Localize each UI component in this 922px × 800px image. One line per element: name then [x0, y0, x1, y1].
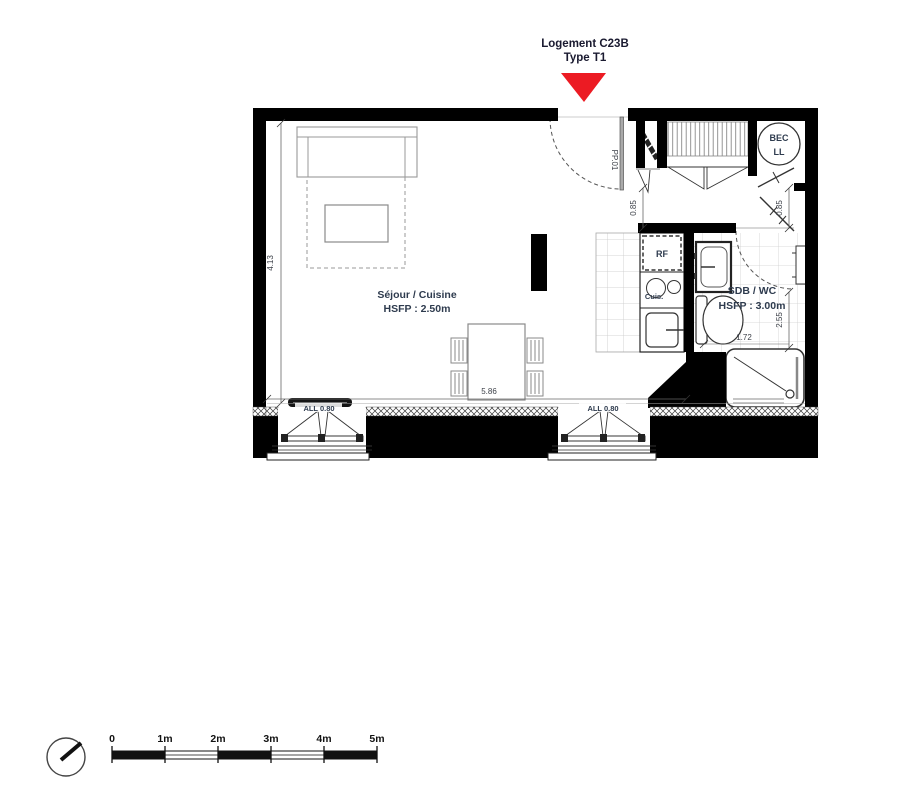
shower-drain — [786, 390, 794, 398]
wall-segment — [366, 416, 558, 458]
wall-segment — [794, 183, 805, 191]
kitchen-block: RF Cuis. — [640, 233, 684, 352]
kitchen-sink — [646, 313, 684, 347]
plan-header: Logement C23B Type T1 — [541, 38, 629, 102]
dim-2-55: 2.55 — [775, 312, 784, 328]
wall-segment — [650, 416, 818, 458]
scale-tick-label: 0 — [109, 733, 115, 745]
dim-0-85-left: 0.85 — [629, 200, 638, 216]
scale-tick-label: 3m — [263, 733, 278, 745]
entry-door-leaf — [620, 117, 624, 190]
cooktop-label: Cuis. — [645, 292, 663, 301]
entry-door: PP.01 — [550, 117, 628, 190]
wall-segment — [805, 108, 818, 407]
wardrobe-door-right — [707, 167, 748, 189]
dim-5-86: 5.86 — [481, 387, 497, 396]
wall-segment — [253, 108, 266, 458]
shower — [726, 349, 804, 407]
compass-icon — [47, 738, 85, 776]
all-right-label: ALL 0.80 — [587, 404, 618, 413]
window-sill — [548, 453, 656, 460]
floorplan-canvas: Logement C23B Type T1 RF Cuis. — [0, 0, 922, 800]
dim-0-85-right: 0.85 — [775, 200, 784, 216]
wall-segment — [748, 168, 757, 176]
dim-1-72: 1.72 — [736, 333, 752, 342]
unit-type: Type T1 — [564, 52, 607, 64]
wall-segment — [657, 121, 667, 168]
scale-tick-label: 4m — [316, 733, 331, 745]
window-right — [548, 408, 656, 462]
coffee-table — [325, 205, 388, 242]
wall-segment — [684, 223, 694, 352]
floor-plan: Logement C23B Type T1 RF Cuis. — [0, 0, 922, 800]
chair — [527, 338, 543, 363]
corner-wall — [648, 352, 726, 416]
window-sill — [267, 453, 369, 460]
chair — [527, 371, 543, 396]
sdb-hsfp-label: HSFP : 3.00m — [719, 300, 786, 312]
sofa-bed — [297, 127, 417, 268]
scale-tick-label: 1m — [157, 733, 172, 745]
unit-location-marker-icon — [561, 73, 606, 102]
all-left-label: ALL 0.80 — [303, 404, 334, 413]
fridge-label: RF — [656, 249, 668, 259]
closet-door — [638, 170, 650, 192]
unit-title: Logement C23B — [541, 38, 629, 50]
water-heater-label-1: BEC — [769, 133, 789, 143]
washbasin — [693, 242, 731, 292]
scale-bar: 0 1m 2m 3m 4m 5m — [109, 733, 385, 763]
chair — [451, 371, 467, 396]
wall-segment — [694, 223, 736, 233]
wall-segment — [253, 108, 558, 121]
structural-column — [531, 234, 547, 291]
scale-tick-label: 2m — [210, 733, 225, 745]
sejour-hsfp-label: HSFP : 2.50m — [384, 303, 451, 315]
sejour-label: Séjour / Cuisine — [377, 289, 457, 301]
sdb-label: SDB / WC — [728, 285, 777, 297]
wall-segment — [253, 416, 278, 458]
water-heater-label-2: LL — [774, 147, 785, 157]
scale-tick-label: 5m — [369, 733, 384, 745]
dim-4-13: 4.13 — [266, 255, 275, 271]
chair — [451, 338, 467, 363]
water-heater: BEC LL — [758, 123, 800, 187]
wall-segment — [748, 121, 757, 168]
wardrobe — [660, 122, 757, 189]
wall-segment — [628, 108, 818, 121]
kitchen-floor-tiles — [596, 233, 640, 352]
wardrobe-door-left — [668, 167, 704, 189]
entry-door-label: PP.01 — [610, 150, 619, 171]
wall-segment — [636, 121, 645, 168]
